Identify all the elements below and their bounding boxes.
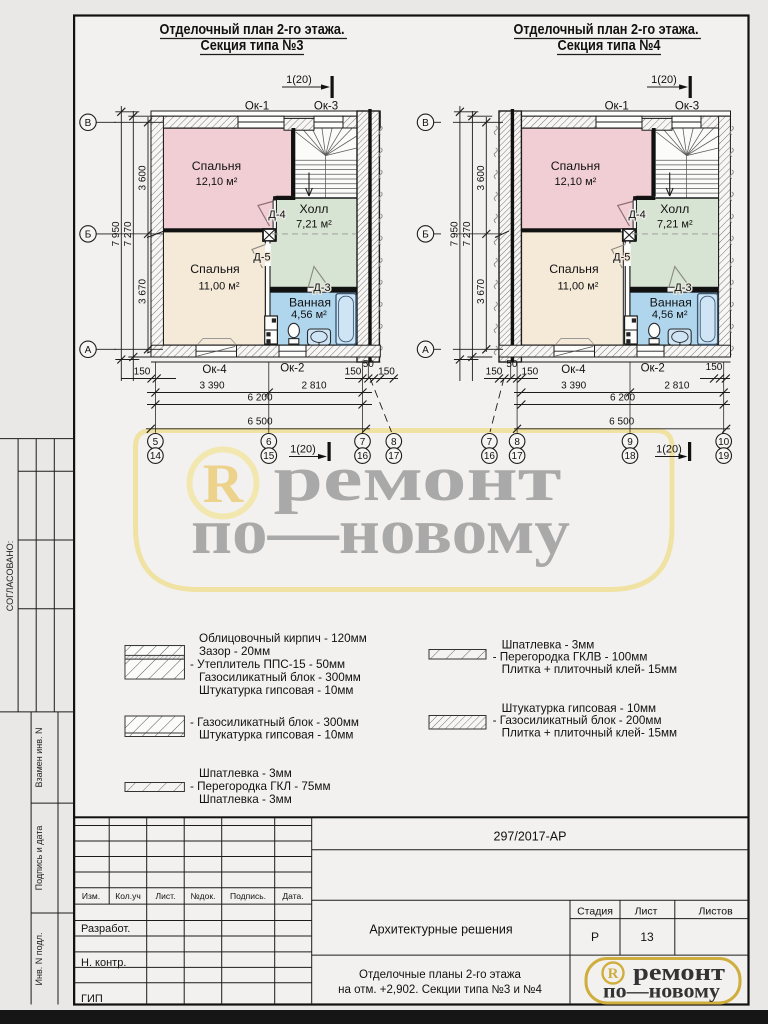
svg-text:- Перегородка ГКЛВ - 100мм: - Перегородка ГКЛВ - 100мм: [493, 651, 648, 664]
svg-text:297/2017-АР: 297/2017-АР: [494, 830, 567, 844]
svg-text:Д-5: Д-5: [253, 252, 270, 264]
svg-text:7 270: 7 270: [462, 221, 473, 246]
svg-text:Зазор - 20мм: Зазор - 20мм: [199, 645, 270, 658]
svg-text:1(20): 1(20): [651, 74, 677, 86]
svg-text:Ок-3: Ок-3: [675, 101, 699, 113]
svg-text:Штукатурка гипсовая - 10мм: Штукатурка гипсовая - 10мм: [199, 684, 353, 697]
svg-text:- Газосиликатный блок - 200мм: - Газосиликатный блок - 200мм: [493, 714, 662, 727]
svg-text:Холл: Холл: [300, 202, 329, 216]
svg-text:1(20): 1(20): [286, 74, 312, 86]
svg-text:Р: Р: [591, 930, 599, 944]
svg-text:8: 8: [514, 437, 520, 448]
svg-text:150: 150: [486, 367, 503, 378]
svg-text:3 390: 3 390: [561, 381, 586, 392]
svg-text:Ванная: Ванная: [289, 296, 331, 310]
svg-text:Лист.: Лист.: [156, 891, 176, 901]
svg-text:- Утеплитель ППС-15 - 50мм: - Утеплитель ППС-15 - 50мм: [190, 658, 345, 671]
svg-text:150: 150: [522, 367, 539, 378]
svg-text:1(20): 1(20): [290, 444, 316, 456]
svg-text:Ок-2: Ок-2: [641, 363, 665, 375]
svg-text:Штукатурка гипсовая - 10мм: Штукатурка гипсовая - 10мм: [502, 702, 656, 715]
svg-text:Листов: Листов: [699, 905, 734, 917]
svg-text:2 810: 2 810: [301, 381, 326, 392]
svg-text:Н. контр.: Н. контр.: [81, 957, 126, 969]
svg-text:Б: Б: [85, 230, 92, 241]
svg-text:Газосиликатный блок - 300мм: Газосиликатный блок - 300мм: [199, 671, 361, 684]
svg-text:А: А: [85, 345, 92, 356]
svg-text:Д-4: Д-4: [268, 209, 285, 221]
svg-text:Стадия: Стадия: [577, 905, 613, 917]
svg-text:7: 7: [360, 437, 366, 448]
svg-text:6: 6: [266, 437, 272, 448]
svg-text:3 390: 3 390: [199, 381, 224, 392]
svg-text:Ок-2: Ок-2: [280, 363, 304, 375]
svg-text:Плитка + плиточный клей- 15мм: Плитка + плиточный клей- 15мм: [502, 663, 677, 676]
svg-text:10: 10: [718, 437, 730, 448]
svg-text:Спальня: Спальня: [549, 262, 598, 276]
svg-text:Лист: Лист: [635, 905, 658, 917]
svg-text:Б: Б: [422, 230, 429, 241]
svg-text:4,56 м²: 4,56 м²: [291, 309, 327, 321]
svg-text:Шпатлевка - 3мм: Шпатлевка - 3мм: [199, 767, 292, 780]
svg-text:7: 7: [487, 437, 493, 448]
svg-text:Ок-1: Ок-1: [245, 101, 269, 113]
svg-text:7 270: 7 270: [123, 221, 134, 246]
svg-text:Спальня: Спальня: [551, 159, 600, 173]
svg-text:В: В: [85, 118, 92, 129]
svg-text:3 670: 3 670: [138, 279, 149, 304]
svg-text:Разработ.: Разработ.: [81, 923, 130, 935]
svg-text:7,21 м²: 7,21 м²: [296, 219, 332, 231]
svg-text:11,00 м²: 11,00 м²: [199, 281, 240, 293]
svg-text:- Перегородка ГКЛ - 75мм: - Перегородка ГКЛ - 75мм: [190, 780, 331, 793]
svg-text:7,21 м²: 7,21 м²: [657, 219, 693, 231]
svg-text:12,10 м²: 12,10 м²: [555, 176, 597, 188]
svg-text:17: 17: [512, 451, 524, 462]
svg-text:150: 150: [706, 362, 723, 373]
svg-text:СОГЛАСОВАНО:: СОГЛАСОВАНО:: [5, 541, 15, 611]
svg-text:№док.: №док.: [191, 891, 216, 901]
svg-text:Плитка + плиточный клей- 15мм: Плитка + плиточный клей- 15мм: [502, 726, 677, 739]
svg-text:Дата.: Дата.: [282, 891, 303, 901]
svg-text:3 600: 3 600: [138, 165, 149, 190]
svg-text:Подпись.: Подпись.: [230, 891, 266, 901]
svg-text:1(20): 1(20): [656, 444, 682, 456]
svg-text:Д-4: Д-4: [628, 209, 645, 221]
svg-text:16: 16: [484, 451, 496, 462]
svg-text:Д-5: Д-5: [613, 252, 630, 264]
svg-text:Изм.: Изм.: [82, 891, 100, 901]
svg-text:Кол.уч: Кол.уч: [115, 891, 141, 901]
svg-text:Архитектурные решения: Архитектурные решения: [369, 923, 512, 937]
svg-text:В: В: [422, 118, 429, 129]
svg-text:8: 8: [391, 437, 397, 448]
svg-text:150: 150: [378, 367, 395, 378]
svg-text:17: 17: [388, 451, 400, 462]
svg-text:13: 13: [640, 930, 654, 944]
svg-text:по—новому: по—новому: [191, 496, 570, 568]
svg-text:Д-3: Д-3: [313, 282, 330, 294]
svg-text:Ванная: Ванная: [650, 296, 692, 310]
svg-text:Д-3: Д-3: [674, 282, 691, 294]
svg-text:7 950: 7 950: [111, 221, 122, 246]
svg-text:19: 19: [718, 451, 730, 462]
svg-text:Шпатлевка - 3мм: Шпатлевка - 3мм: [502, 638, 595, 651]
svg-text:6 200: 6 200: [610, 393, 635, 404]
svg-text:Ок-3: Ок-3: [314, 101, 338, 113]
svg-text:Отделочные планы 2-го этажа: Отделочные планы 2-го этажа: [359, 969, 521, 981]
svg-text:6 500: 6 500: [609, 417, 634, 428]
svg-text:9: 9: [627, 437, 633, 448]
svg-text:3 600: 3 600: [476, 165, 487, 190]
svg-text:Секция типа №3: Секция типа №3: [201, 37, 304, 54]
svg-text:Холл: Холл: [660, 202, 689, 216]
svg-text:18: 18: [624, 451, 636, 462]
svg-text:на отм. +2,902. Секции типа №3: на отм. +2,902. Секции типа №3 и №4: [338, 984, 542, 996]
svg-text:Отделочный план 2-го этажа.: Отделочный план 2-го этажа.: [514, 21, 699, 38]
svg-text:150: 150: [134, 367, 151, 378]
svg-text:Облицовочный кирпич - 120мм: Облицовочный кирпич - 120мм: [199, 632, 367, 645]
svg-text:11,00 м²: 11,00 м²: [557, 281, 598, 293]
svg-text:Шпатлевка - 3мм: Шпатлевка - 3мм: [199, 793, 292, 806]
svg-text:Штукатурка гипсовая - 10мм: Штукатурка гипсовая - 10мм: [199, 728, 353, 741]
svg-text:- Газосиликатный блок - 300мм: - Газосиликатный блок - 300мм: [190, 716, 359, 729]
svg-text:15: 15: [263, 451, 275, 462]
svg-text:ГИП: ГИП: [81, 993, 103, 1005]
svg-text:Отделочный план 2-го этажа.: Отделочный план 2-го этажа.: [160, 21, 345, 38]
svg-text:Ок-4: Ок-4: [202, 364, 227, 376]
svg-text:7 950: 7 950: [449, 221, 460, 246]
svg-text:16: 16: [357, 451, 369, 462]
svg-text:Ок-4: Ок-4: [561, 364, 586, 376]
svg-text:Секция типа №4: Секция типа №4: [558, 37, 662, 54]
svg-text:14: 14: [150, 451, 162, 462]
svg-text:Ок-1: Ок-1: [605, 101, 629, 113]
svg-text:5: 5: [153, 437, 159, 448]
svg-text:150: 150: [345, 367, 362, 378]
svg-text:4,56 м²: 4,56 м²: [652, 309, 688, 321]
svg-text:2 810: 2 810: [664, 381, 689, 392]
svg-text:Подпись и дата: Подпись и дата: [34, 826, 44, 891]
svg-text:12,10 м²: 12,10 м²: [196, 176, 238, 188]
svg-text:3 670: 3 670: [476, 279, 487, 304]
svg-text:Спальня: Спальня: [192, 159, 241, 173]
svg-text:Инв. N подл.: Инв. N подл.: [34, 933, 44, 986]
svg-text:А: А: [422, 345, 429, 356]
svg-text:50: 50: [506, 359, 518, 370]
svg-text:Спальня: Спальня: [190, 262, 239, 276]
svg-text:Взамен инв. N: Взамен инв. N: [34, 727, 44, 787]
svg-text:по—новому: по—новому: [603, 981, 720, 1003]
